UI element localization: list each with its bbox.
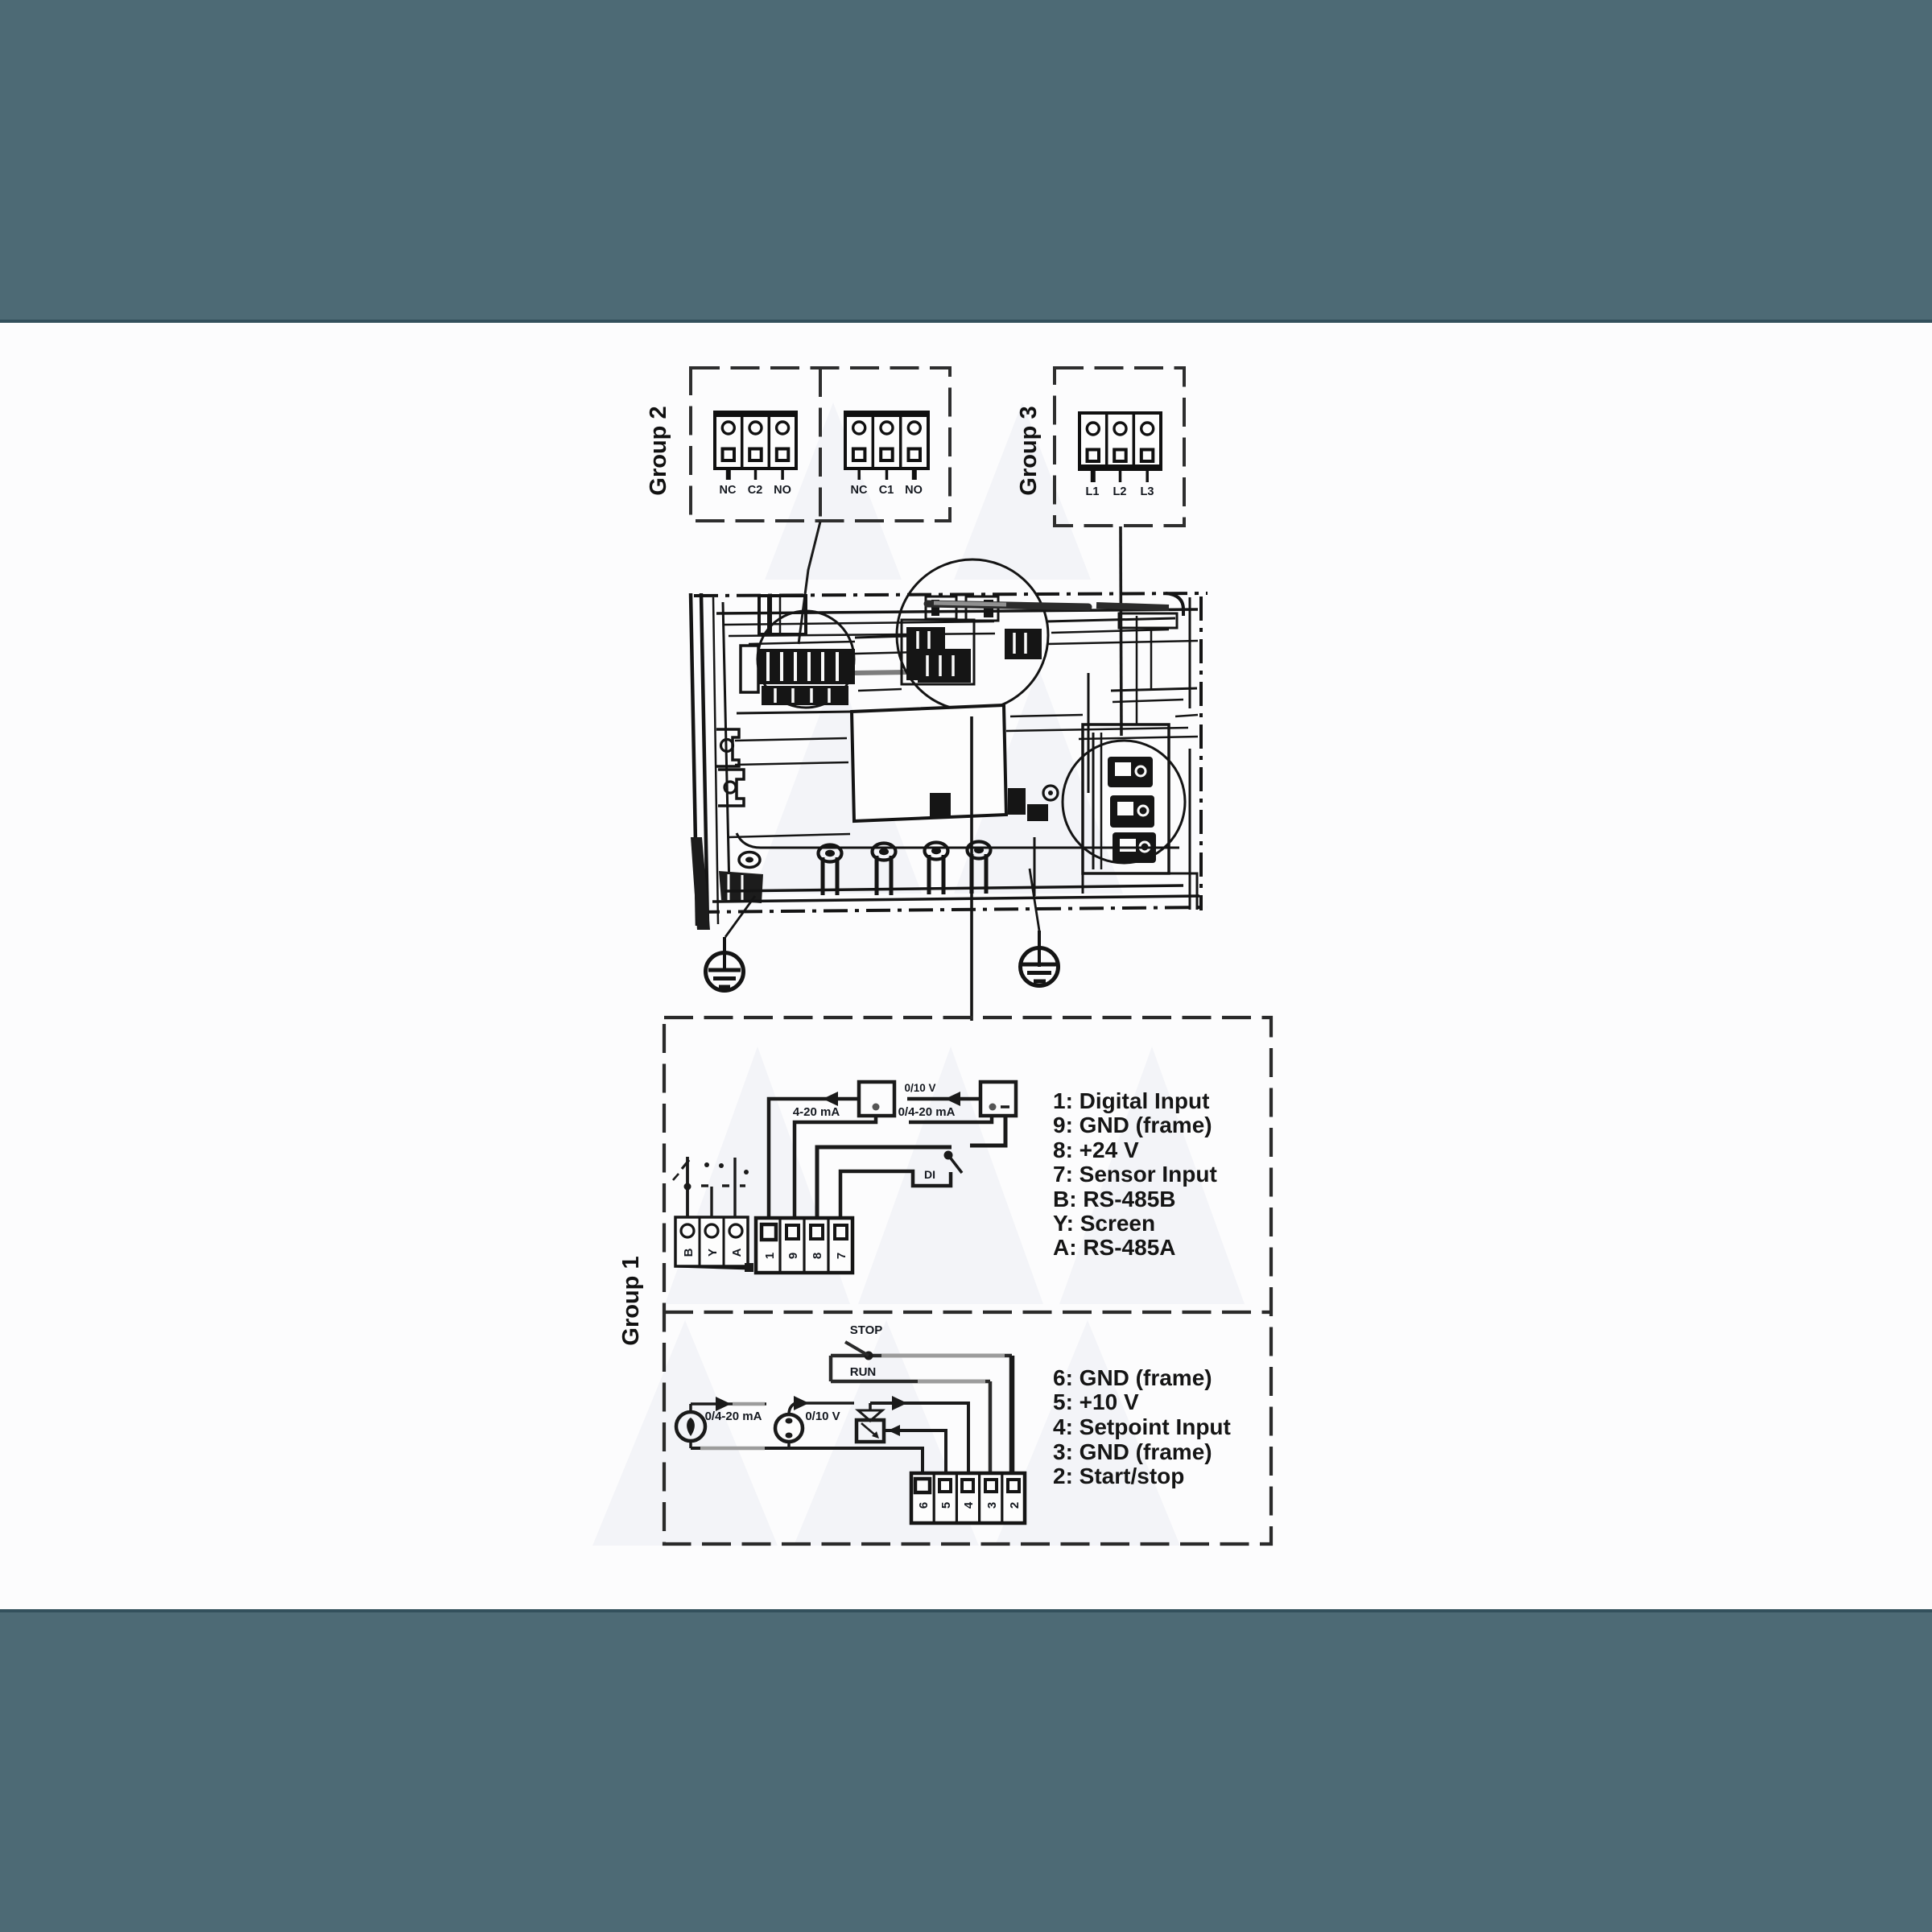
svg-text:3: GND (frame): 3: GND (frame) bbox=[1053, 1439, 1212, 1464]
svg-text:L1: L1 bbox=[1086, 485, 1100, 498]
svg-text:1: Digital Input: 1: Digital Input bbox=[1053, 1088, 1209, 1113]
svg-text:2: Start/stop: 2: Start/stop bbox=[1053, 1463, 1184, 1488]
svg-text:9: GND (frame): 9: GND (frame) bbox=[1053, 1113, 1212, 1137]
svg-text:L2: L2 bbox=[1113, 485, 1127, 498]
svg-text:8: +24 V: 8: +24 V bbox=[1053, 1137, 1139, 1162]
svg-text:1: 1 bbox=[763, 1253, 777, 1259]
svg-text:B: RS-485B: B: RS-485B bbox=[1053, 1187, 1175, 1212]
svg-text:4: 4 bbox=[962, 1501, 976, 1509]
svg-text:DI: DI bbox=[924, 1168, 935, 1181]
svg-text:NC: NC bbox=[851, 484, 868, 497]
svg-text:C1: C1 bbox=[879, 484, 894, 497]
svg-text:6: 6 bbox=[917, 1502, 931, 1509]
svg-text:4-20 mA: 4-20 mA bbox=[793, 1105, 840, 1119]
svg-text:NO: NO bbox=[905, 484, 923, 497]
svg-text:5: 5 bbox=[939, 1502, 953, 1509]
svg-text:B: B bbox=[682, 1248, 696, 1257]
svg-text:RUN: RUN bbox=[850, 1365, 877, 1379]
svg-text:Group 3: Group 3 bbox=[1016, 406, 1042, 495]
svg-text:C2: C2 bbox=[748, 484, 763, 497]
svg-text:7: Sensor Input: 7: Sensor Input bbox=[1053, 1162, 1217, 1187]
svg-text:4: Setpoint Input: 4: Setpoint Input bbox=[1053, 1414, 1231, 1439]
svg-text:6: GND (frame): 6: GND (frame) bbox=[1053, 1365, 1212, 1390]
svg-text:NO: NO bbox=[774, 484, 791, 497]
svg-text:Y: Screen: Y: Screen bbox=[1053, 1211, 1155, 1236]
svg-text:A: A bbox=[730, 1248, 744, 1257]
svg-text:0/10 V: 0/10 V bbox=[805, 1410, 840, 1423]
svg-text:7: 7 bbox=[835, 1253, 848, 1259]
svg-text:L3: L3 bbox=[1141, 485, 1154, 498]
svg-text:2: 2 bbox=[1008, 1502, 1022, 1509]
svg-text:Group 2: Group 2 bbox=[646, 406, 671, 495]
svg-text:STOP: STOP bbox=[850, 1323, 883, 1337]
svg-text:NC: NC bbox=[720, 484, 737, 497]
svg-text:A: RS-485A: A: RS-485A bbox=[1053, 1235, 1175, 1260]
svg-text:0/4-20 mA: 0/4-20 mA bbox=[705, 1410, 762, 1423]
svg-text:Group 1: Group 1 bbox=[618, 1256, 644, 1345]
svg-text:3: 3 bbox=[985, 1502, 999, 1509]
svg-text:0/4-20 mA: 0/4-20 mA bbox=[898, 1105, 956, 1119]
svg-text:9: 9 bbox=[786, 1253, 800, 1259]
svg-text:Y: Y bbox=[706, 1249, 720, 1257]
svg-text:0/10 V: 0/10 V bbox=[904, 1082, 935, 1094]
svg-text:8: 8 bbox=[811, 1253, 824, 1259]
svg-text:5: +10 V: 5: +10 V bbox=[1053, 1389, 1139, 1414]
